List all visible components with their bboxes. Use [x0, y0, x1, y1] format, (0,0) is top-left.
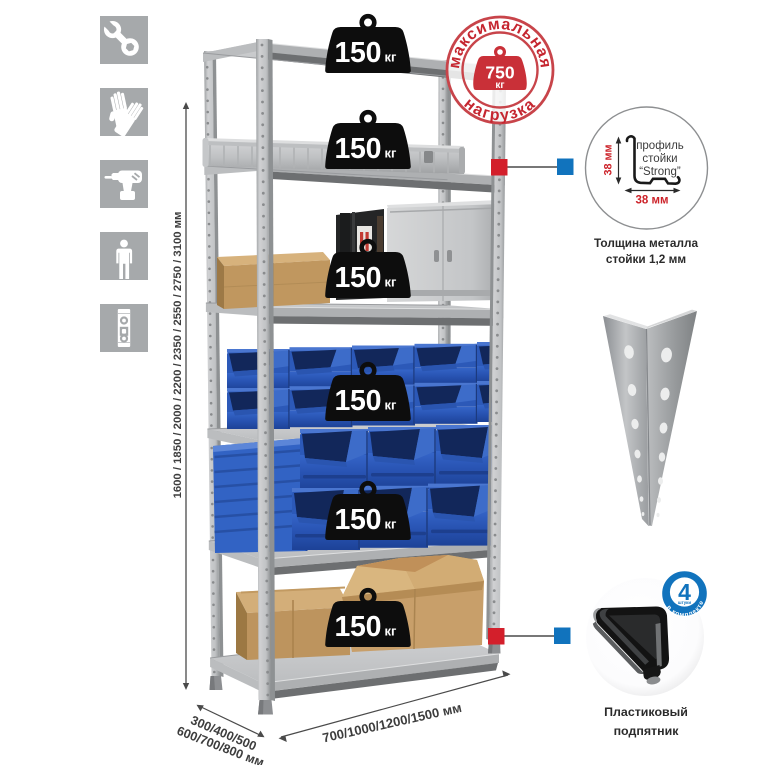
svg-text:стойки: стойки: [642, 153, 677, 165]
svg-text:Толщина металла: Толщина металла: [594, 236, 698, 250]
svg-text:“Strong”: “Strong”: [639, 166, 681, 178]
svg-text:подпятник: подпятник: [614, 724, 680, 738]
svg-text:Пластиковый: Пластиковый: [604, 705, 688, 719]
svg-text:стойки 1,2 мм: стойки 1,2 мм: [606, 252, 686, 266]
svg-text:38 мм: 38 мм: [603, 144, 615, 175]
svg-text:38 мм: 38 мм: [635, 195, 668, 207]
svg-text:кг: кг: [495, 80, 504, 91]
svg-text:1600 / 1850 / 2000 / 2200 / 23: 1600 / 1850 / 2000 / 2200 / 2350 / 2550 …: [172, 212, 184, 499]
svg-text:профиль: профиль: [636, 140, 684, 152]
svg-text:штуки: штуки: [678, 600, 691, 605]
